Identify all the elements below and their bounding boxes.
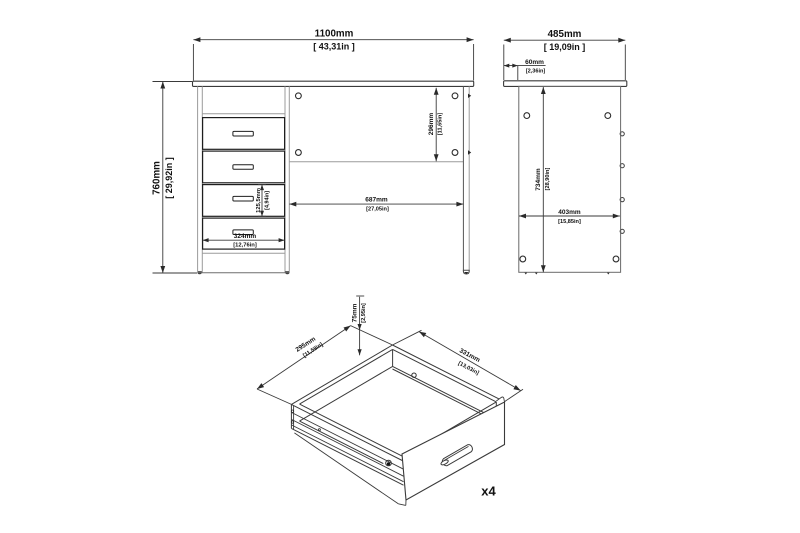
svg-text:403mm: 403mm — [558, 209, 581, 216]
svg-text:[28,90in]: [28,90in] — [545, 168, 551, 191]
svg-text:[15,85in]: [15,85in] — [558, 219, 581, 225]
svg-text:[2,95in]: [2,95in] — [361, 303, 367, 323]
svg-text:60mm: 60mm — [525, 59, 544, 66]
svg-text:[4,94in]: [4,94in] — [265, 191, 271, 210]
svg-text:[ 43,31in ]: [ 43,31in ] — [313, 42, 355, 52]
svg-text:[2,36in]: [2,36in] — [526, 69, 546, 75]
svg-text:296mm: 296mm — [428, 113, 435, 136]
svg-text:[12,76in]: [12,76in] — [233, 242, 257, 248]
svg-text:[11,65in]: [11,65in] — [437, 113, 443, 136]
svg-text:[27,05in]: [27,05in] — [366, 207, 389, 213]
svg-text:75mm: 75mm — [351, 303, 358, 322]
svg-text:485mm: 485mm — [548, 29, 582, 40]
svg-text:1100mm: 1100mm — [315, 28, 354, 39]
svg-text:125,5mm: 125,5mm — [256, 188, 262, 213]
svg-text:[ 19,09in ]: [ 19,09in ] — [544, 42, 586, 52]
svg-text:[ 29,92in ]: [ 29,92in ] — [164, 157, 174, 199]
svg-text:760mm: 760mm — [152, 161, 163, 195]
svg-text:687mm: 687mm — [365, 196, 388, 203]
svg-text:x4: x4 — [481, 483, 496, 498]
svg-text:734mm: 734mm — [535, 168, 542, 191]
svg-text:324mm: 324mm — [234, 233, 257, 240]
